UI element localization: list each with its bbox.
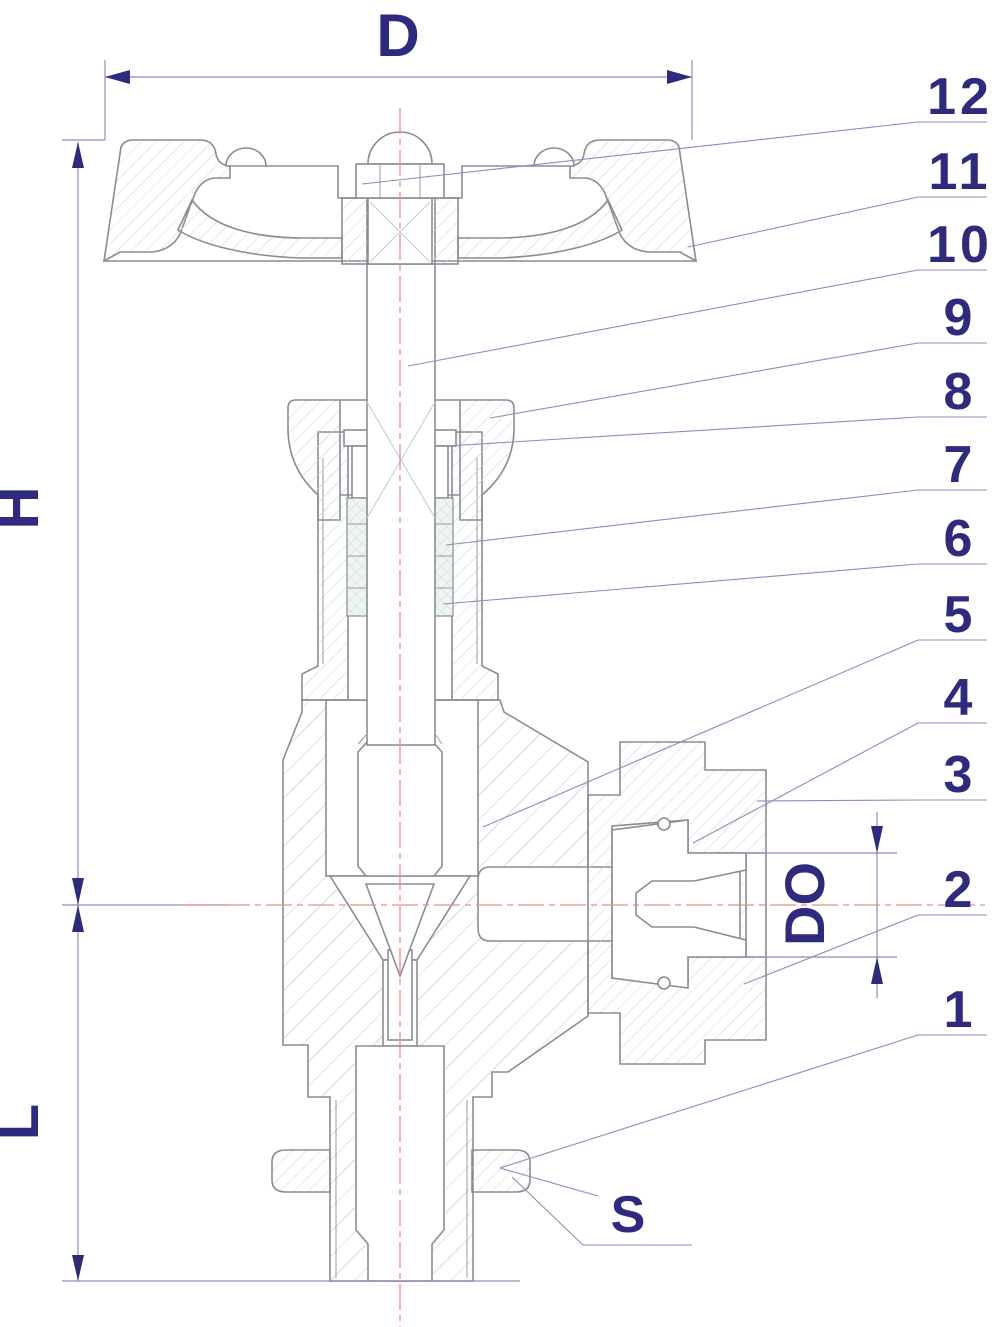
- dim-label-S: S: [611, 1186, 646, 1244]
- hex-flat-left: [272, 1150, 330, 1192]
- svg-text:4: 4: [944, 669, 977, 727]
- svg-text:9: 9: [944, 289, 977, 347]
- callout-9: 9: [490, 289, 987, 418]
- handwheel-left-web: [178, 200, 342, 258]
- detent-dimple: [658, 818, 670, 830]
- callout-8: 8: [447, 363, 987, 446]
- handwheel-right-web: [458, 200, 622, 258]
- detent-dimple: [658, 977, 670, 989]
- svg-text:10: 10: [927, 216, 993, 274]
- dim-label-H: H: [0, 486, 51, 529]
- handwheel-right-spoke: [534, 148, 574, 166]
- svg-text:1: 1: [944, 981, 977, 1039]
- dim-label-D: D: [376, 2, 419, 69]
- dim-label-DO: DO: [773, 862, 836, 946]
- valve-body: [283, 700, 616, 1281]
- svg-text:7: 7: [944, 436, 977, 494]
- dim-label-L: L: [0, 1104, 51, 1141]
- callout-6: 6: [443, 510, 987, 604]
- dimension-H: H: [0, 142, 84, 905]
- drawing-sheet: D H L DO S 12: [0, 0, 1000, 1327]
- centerlines: [62, 108, 985, 1327]
- callout-3: 3: [757, 746, 987, 804]
- svg-text:6: 6: [944, 510, 977, 568]
- handwheel-left-spoke: [226, 148, 266, 166]
- svg-text:2: 2: [944, 861, 977, 919]
- svg-text:12: 12: [927, 68, 993, 126]
- svg-text:8: 8: [944, 363, 977, 421]
- callout-7: 7: [446, 436, 987, 545]
- valve-section-drawing: D H L DO S 12: [0, 0, 1000, 1327]
- svg-text:5: 5: [944, 586, 977, 644]
- svg-text:11: 11: [929, 143, 992, 201]
- dimension-D: D: [62, 2, 692, 140]
- svg-text:3: 3: [944, 746, 977, 804]
